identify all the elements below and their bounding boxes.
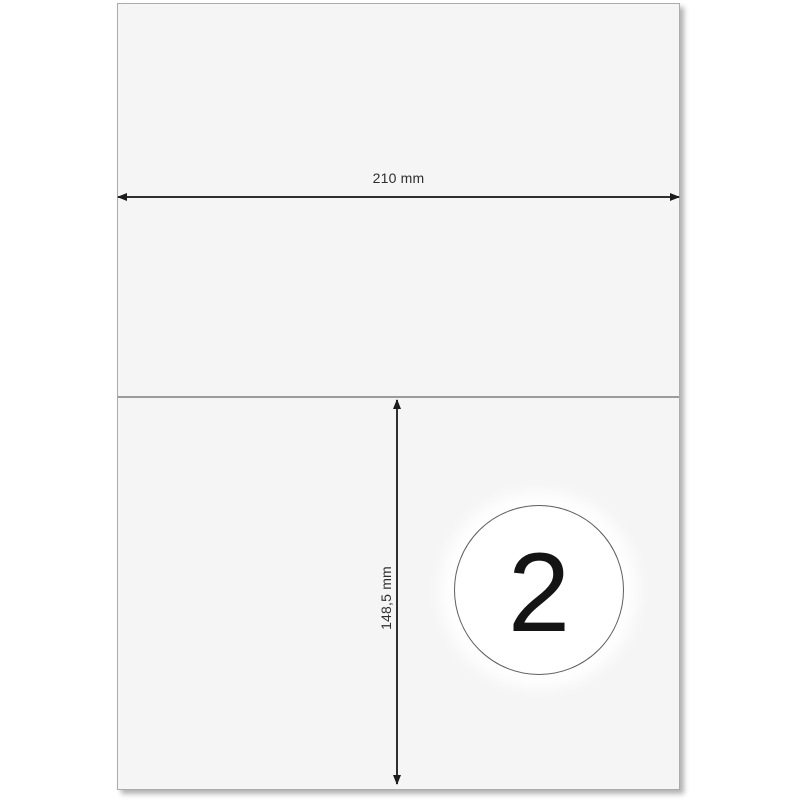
a4-sheet: 210 mm 148,5 mm 2 <box>117 3 680 790</box>
label-divider-line <box>118 396 679 398</box>
height-dimension-line <box>396 400 398 784</box>
width-dimension-line <box>118 196 679 198</box>
labels-per-sheet-badge: 2 <box>454 505 624 675</box>
labels-per-sheet-count: 2 <box>508 537 570 649</box>
arrowhead-right-icon <box>670 193 680 201</box>
width-dimension-label: 210 mm <box>118 170 679 186</box>
arrowhead-up-icon <box>393 399 401 409</box>
label-sheet-product-image: 210 mm 148,5 mm 2 <box>0 0 800 800</box>
height-dimension-label: 148,5 mm <box>378 566 394 630</box>
arrowhead-down-icon <box>393 775 401 785</box>
arrowhead-left-icon <box>117 193 127 201</box>
